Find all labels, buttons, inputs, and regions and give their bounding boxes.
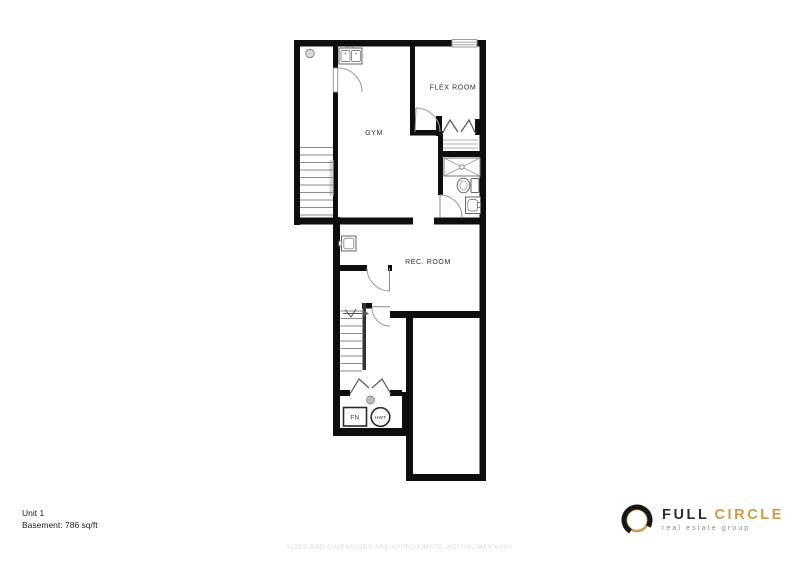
floor-plan-drawing: FN HWT GYM FLEX ROOM REC. ROOM bbox=[0, 0, 800, 566]
wall-upper-bottom-left bbox=[294, 218, 413, 225]
wall-utility-bifold-right-stub bbox=[390, 390, 402, 396]
closet-shelves bbox=[443, 140, 478, 148]
wall-rec-bottom bbox=[390, 311, 486, 318]
logo-name-primary: FULL bbox=[662, 507, 709, 523]
room-label-flex-room: FLEX ROOM bbox=[430, 85, 477, 92]
logo-text: FULLCIRCLE real estate group bbox=[662, 508, 784, 532]
door-sink-closet bbox=[367, 268, 390, 291]
bar-sink bbox=[339, 236, 356, 251]
hot-water-tank: HWT bbox=[371, 408, 390, 427]
doors bbox=[333, 68, 462, 326]
disclaimer-text: SIZES AND DIMENSIONS ARE APPROXIMATE, AC… bbox=[0, 544, 800, 551]
room-label-rec-room: REC. ROOM bbox=[405, 259, 451, 266]
wall-closet-bottom bbox=[438, 151, 486, 157]
logo-tagline: real estate group bbox=[662, 525, 784, 532]
wall-sinkcloset-bottom bbox=[333, 265, 367, 271]
wall-right bbox=[480, 40, 487, 481]
wall-bath-left bbox=[438, 131, 443, 195]
floor-plan-page: FN HWT GYM FLEX ROOM REC. ROOM Unit 1 Ba… bbox=[0, 0, 800, 566]
door-gym-entry bbox=[333, 68, 362, 92]
wall-utility-bifold-left-stub bbox=[340, 390, 350, 396]
wall-stairshaft-a bbox=[333, 40, 338, 68]
window bbox=[452, 40, 477, 48]
vanity-sink bbox=[466, 197, 481, 214]
room-label-gym: GYM bbox=[365, 130, 383, 137]
floor-drain bbox=[367, 396, 375, 404]
stairs-upper bbox=[300, 148, 334, 216]
logo-name-secondary: CIRCLE bbox=[714, 507, 784, 523]
laundry-sink bbox=[339, 47, 362, 65]
toilet bbox=[457, 178, 479, 193]
bifold-closet-left-panel bbox=[442, 120, 458, 134]
furnace-label: FN bbox=[350, 415, 359, 422]
door-lower-hall bbox=[372, 307, 390, 326]
wall-stairshaft-b bbox=[333, 92, 338, 221]
shower-stall bbox=[444, 158, 480, 176]
wall-left-lower bbox=[333, 217, 340, 436]
wall-gym-flex bbox=[410, 40, 415, 132]
bifold-utility-left-panel bbox=[350, 379, 369, 394]
door-bathroom bbox=[440, 195, 462, 217]
wall-utility-bottom bbox=[333, 428, 409, 436]
unit-info: Unit 1 Basement: 786 sq/ft bbox=[22, 508, 98, 531]
full-circle-logo-icon bbox=[619, 501, 655, 539]
furnace-box: FN bbox=[344, 408, 367, 427]
bifold-closet-right-panel bbox=[461, 120, 476, 134]
wall-left-upper bbox=[294, 40, 300, 225]
wall-bigroom-bottom bbox=[406, 474, 486, 481]
logo-name: FULLCIRCLE bbox=[662, 508, 784, 523]
area-label: Basement: 786 sq/ft bbox=[22, 520, 98, 532]
unit-label: Unit 1 bbox=[22, 508, 98, 520]
wall-upper-bottom-right bbox=[434, 218, 486, 225]
brand-logo: FULLCIRCLE real estate group bbox=[619, 501, 784, 539]
stairs-lower bbox=[341, 311, 363, 371]
bifold-utility-right-panel bbox=[372, 379, 391, 394]
sump-circle bbox=[306, 49, 315, 58]
hot-water-tank-label: HWT bbox=[375, 415, 386, 420]
